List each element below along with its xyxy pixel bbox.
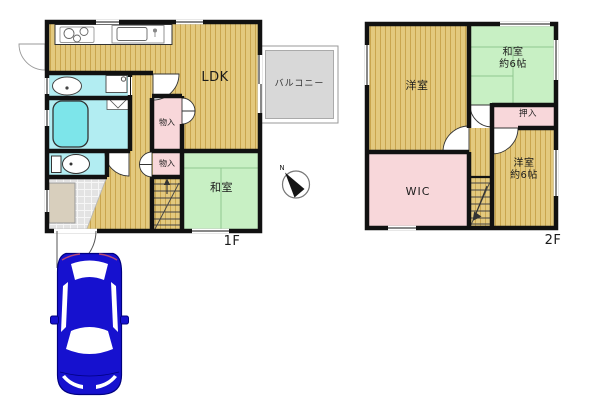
floor2-label: 2F [528, 233, 578, 248]
toilet-icon [52, 155, 90, 174]
vanity-sink-icon [53, 77, 82, 95]
room-label-western-2f: 洋室 [367, 80, 467, 93]
kitchen-counter [55, 25, 172, 45]
room-label-storage-upper: 物入 [150, 118, 184, 127]
compass-icon [283, 171, 310, 198]
room-label-ldk: LDK [185, 70, 245, 85]
washer-pan-icon [106, 76, 127, 93]
room-label-wic: WIC [368, 186, 468, 199]
sink-icon [112, 26, 164, 44]
balcony-label: バルコニー [261, 79, 338, 90]
room-label-oshiire: 押入 [496, 109, 560, 119]
room-label-western-6: 洋室 約6帖 [492, 158, 556, 182]
room-label-washitsu-2f: 和室 約6帖 [470, 47, 556, 71]
floor1-plan [19, 20, 338, 270]
floorplan-canvas: LDK バルコニー 物入 物入 和室 1F N 洋室 和室 約6帖 押入 WIC… [0, 0, 600, 408]
compass-north-label: N [277, 164, 287, 172]
car-windshield [66, 327, 113, 354]
stove-icon [60, 27, 94, 43]
shoe-cabinet [49, 183, 75, 223]
car-icon [51, 254, 129, 395]
door-arc-kitchen-side [19, 44, 45, 70]
bathtub-icon [53, 101, 88, 147]
floor1-label: 1F [207, 234, 257, 249]
car-mirror-right [121, 316, 129, 324]
room-label-storage-lower: 物入 [150, 159, 184, 168]
room-label-washitsu-1f: 和室 [183, 182, 260, 195]
car-mirror-left [51, 316, 59, 324]
